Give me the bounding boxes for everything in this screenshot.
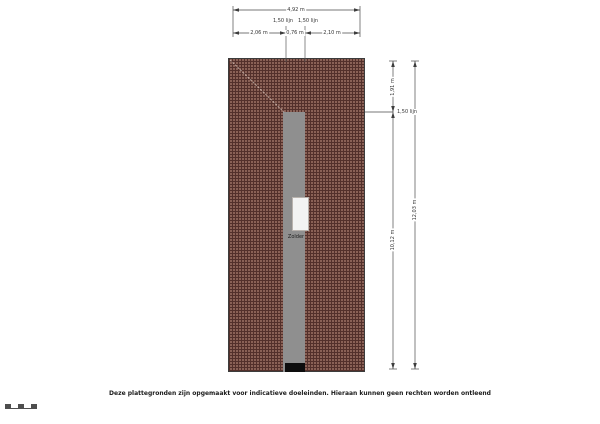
floorplan-canvas: 4,92 m 1,50 lijn 1,50 lijn 2,06 m 0,76 m… [0,0,600,424]
dim-right-lower: 10,12 m [390,229,396,252]
dim-seg-right: 2,10 m [322,30,342,36]
right-dimension-group [365,61,419,369]
dim-seg-left: 2,06 m [249,30,269,36]
dim-seg-mid: 0,76 m [285,30,305,36]
room-label-zolder: Zolder [288,234,304,240]
scale-bar [5,404,37,409]
dim-lijn-left: 1,50 lijn [272,18,294,24]
dim-right-lijn: 1,50 lijn [396,109,418,115]
stair-diagonal [230,60,284,112]
dimension-lines [0,0,600,424]
dim-lijn-right: 1,50 lijn [297,18,319,24]
dim-top-overall: 4,92 m [286,7,306,13]
dim-right-overall: 12,03 m [412,199,418,222]
disclaimer-text: Deze plattegronden zijn opgemaakt voor i… [0,390,600,398]
dim-right-upper: 1,91 m [390,77,396,97]
